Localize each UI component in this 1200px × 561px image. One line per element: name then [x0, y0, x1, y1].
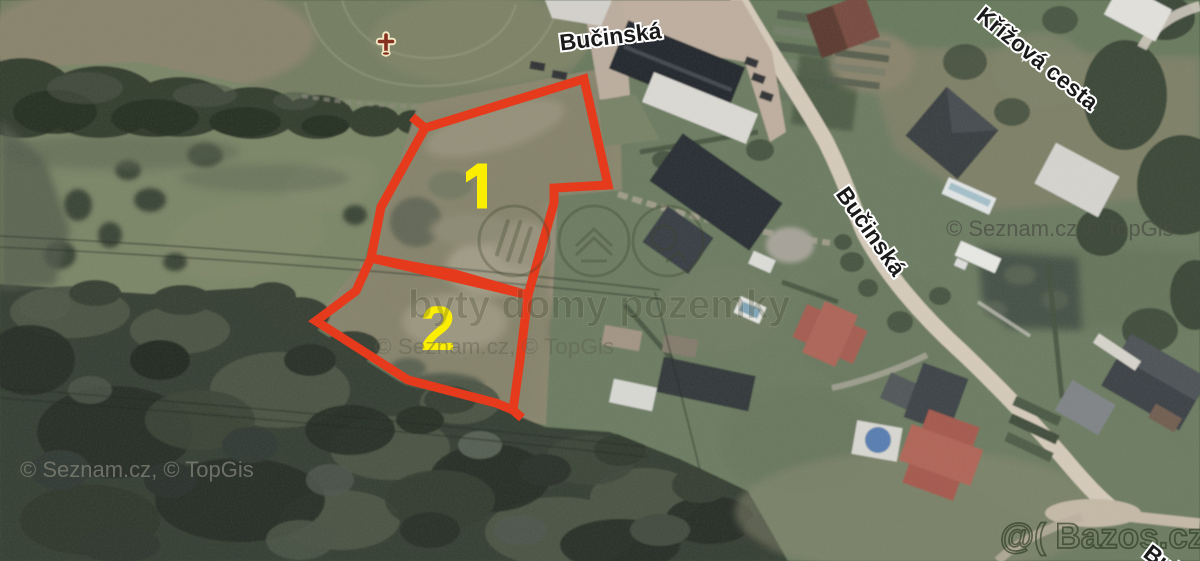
- svg-text:byty domy pozemky: byty domy pozemky: [408, 283, 791, 327]
- svg-text:© Seznam.cz, © TopGis: © Seznam.cz, © TopGis: [375, 334, 614, 359]
- svg-text:© Seznam.cz © TopGis: © Seznam.cz © TopGis: [946, 216, 1174, 241]
- svg-text:© Seznam.cz, © TopGis: © Seznam.cz, © TopGis: [20, 457, 254, 482]
